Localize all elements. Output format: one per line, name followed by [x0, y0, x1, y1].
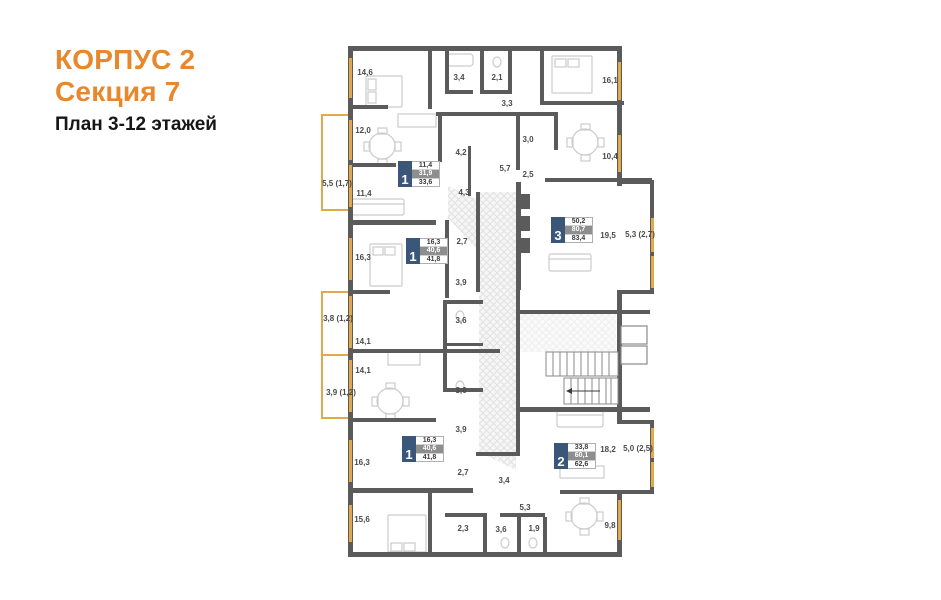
room-area-label: 2,7	[456, 237, 468, 246]
area-total: 33,6	[412, 179, 439, 186]
apartment-areas: 16,3 40,6 41,8	[416, 436, 444, 462]
apartment-rooms-count: 3	[551, 217, 565, 243]
floor-plan-page: КОРПУС 2 Секция 7 План 3-12 этажей	[0, 0, 941, 600]
room-area-label: 11,4	[356, 189, 372, 198]
room-area-label: 3,9	[455, 278, 467, 287]
room-area-label: 3,6	[455, 316, 467, 325]
elevator-shafts	[621, 326, 647, 364]
apartment-badge[interactable]: 1 16,3 40,6 41,8	[406, 238, 448, 264]
apartment-badge[interactable]: 1 16,3 40,6 41,8	[402, 436, 444, 462]
apartment-areas: 16,3 40,6 41,8	[420, 238, 448, 264]
room-area-label: 4,3	[458, 188, 470, 197]
room-area-label: 5,0 (2,5)	[623, 444, 653, 453]
room-area-label: 5,3 (2,7)	[625, 230, 655, 239]
area-main: 31,9	[412, 170, 439, 178]
apartment-areas: 50,2 80,7 83,4	[565, 217, 593, 243]
room-area-label: 3,4	[453, 73, 465, 82]
room-area-label: 14,6	[357, 68, 373, 77]
room-area-label: 1,9	[528, 524, 540, 533]
area-living: 16,3	[416, 437, 443, 445]
room-area-label: 10,4	[602, 152, 618, 161]
apartment-badge[interactable]: 3 50,2 80,7 83,4	[551, 217, 593, 243]
room-area-label: 3,9 (1,2)	[326, 388, 356, 397]
area-main: 40,6	[416, 445, 443, 453]
room-area-label: 5,5 (1,7)	[322, 179, 352, 188]
room-area-label: 18,2	[600, 445, 616, 454]
room-area-label: 3,4	[498, 476, 510, 485]
room-area-label: 16,3	[355, 253, 371, 262]
room-area-label: 5,7	[499, 164, 511, 173]
room-area-label: 3,9	[455, 425, 467, 434]
room-area-label: 2,7	[457, 468, 469, 477]
floor-plan-svg: 14,6 3,4 2,1 16,1 3,3 12,0 4,2 3,0 10,4 …	[0, 0, 941, 600]
room-area-label: 9,8	[604, 521, 616, 530]
apartment-rooms-count: 1	[398, 161, 412, 187]
area-living: 11,4	[412, 162, 439, 170]
area-living: 16,3	[420, 239, 447, 247]
area-total: 62,6	[568, 461, 595, 468]
room-area-label: 4,2	[455, 148, 467, 157]
room-area-label: 5,3	[519, 503, 531, 512]
room-area-label: 19,5	[600, 231, 616, 240]
room-area-label: 3,8 (1,2)	[323, 314, 353, 323]
area-total: 83,4	[565, 235, 592, 242]
room-area-label: 14,1	[355, 366, 371, 375]
apartment-areas: 11,4 31,9 33,6	[412, 161, 440, 187]
apartment-rooms-count: 1	[406, 238, 420, 264]
room-area-label: 16,1	[602, 76, 618, 85]
room-area-label: 2,5	[522, 170, 534, 179]
area-total: 41,8	[416, 454, 443, 461]
room-area-label: 2,3	[457, 524, 469, 533]
apartment-rooms-count: 1	[402, 436, 416, 462]
balconies	[322, 115, 350, 418]
area-main: 40,6	[420, 247, 447, 255]
area-living: 33,8	[568, 444, 595, 452]
apartment-badge[interactable]: 1 11,4 31,9 33,6	[398, 161, 440, 187]
area-total: 41,8	[420, 256, 447, 263]
room-area-label: 3,3	[501, 99, 513, 108]
room-area-label: 3,6	[455, 386, 467, 395]
apartment-rooms-count: 2	[554, 443, 568, 469]
area-main: 60,1	[568, 452, 595, 460]
room-area-label: 16,3	[354, 458, 370, 467]
area-main: 80,7	[565, 226, 592, 234]
room-area-label: 12,0	[355, 126, 371, 135]
room-area-label: 2,1	[491, 73, 503, 82]
room-area-label: 3,0	[522, 135, 534, 144]
staircase	[546, 352, 618, 404]
room-area-label: 14,1	[355, 337, 371, 346]
area-living: 50,2	[565, 218, 592, 226]
apartment-badge[interactable]: 2 33,8 60,1 62,6	[554, 443, 596, 469]
room-area-label: 15,6	[354, 515, 370, 524]
room-area-label: 3,6	[495, 525, 507, 534]
apartment-areas: 33,8 60,1 62,6	[568, 443, 596, 469]
